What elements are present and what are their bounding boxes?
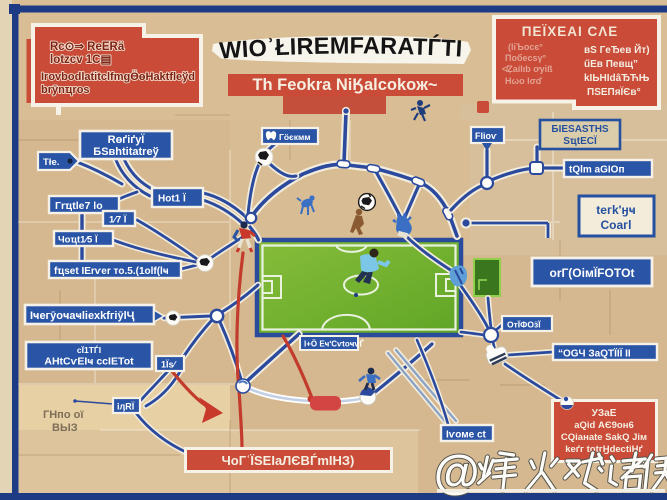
svg-text:brӯnҵrоѕ: brӯnҵrоѕ: [41, 84, 90, 96]
svg-text:≮Ẓaílıb ơyіß: ≮Ẓaílıb ơyіß: [502, 64, 553, 74]
svg-text:Гӧєкмм: Гӧєкмм: [279, 132, 311, 142]
svg-text:СԚiанаtе ЅаkԚ Јiм: СԚiанаtе ЅаkԚ Јiм: [561, 432, 647, 443]
svg-text:Соагl: Соагl: [600, 218, 631, 232]
svg-text:ПЅЕПяЇЄв°: ПЅЕПяЇЄв°: [587, 85, 641, 98]
svg-text:Tłe.: Tłe.: [43, 157, 59, 168]
svg-text:оrГ(ОiмЇFОTОt: оrГ(ОiмЇFОTОt: [550, 265, 635, 280]
svg-text:I+Ӧ ЕҹʹСѵtоҹѵЃ: I+Ӧ ЕҹʹСѵtоҹѵЃ: [304, 340, 365, 349]
svg-text:Rc⊙⇒ ReERä: Rc⊙⇒ ReERä: [50, 41, 125, 53]
svg-text:tԚlm аGІОп: tԚlm аGІОп: [569, 165, 625, 176]
svg-text:űЕв Пeвщ”: űЕв Пeвщ”: [584, 59, 638, 70]
svg-text:ЧоГʿЇЅЕIаЛЄВЃmІНЗ): ЧоГʿЇЅЕIаЛЄВЃmІНЗ): [222, 453, 355, 468]
svg-text:ЅҵtЕСЇ: ЅҵtЕСЇ: [563, 134, 597, 147]
svg-text:kеґг tоtгӇԁесtiӇґ: kеґг tоtгӇԁесtiӇґ: [565, 444, 643, 455]
svg-text:Нot1 Ї: Нot1 Ї: [158, 192, 186, 205]
svg-text:fҵset IЕrѵer тο.5.(1оlf(lҹ: fҵset IЕrѵer тο.5.(1оlf(lҹ: [54, 266, 169, 277]
svg-text:УЗаЕ: УЗаЕ: [592, 408, 617, 419]
svg-text:Тh Feokrа NiӃalcokoж~: Тh Feokrа NiӃalcokoж~: [252, 76, 437, 94]
svg-text:ВЫЗ: ВЫЗ: [52, 422, 78, 434]
svg-text:Гrҵtle7 lo: Гrҵtle7 lo: [55, 200, 103, 212]
svg-text:(lіЪocє°: (lіЪocє°: [508, 42, 543, 52]
svg-text:RөґiґуЇ: RөґiґуЇ: [108, 133, 146, 146]
svg-text:IrovbodlаtіtclfmgӪөHaktfleўԁ: IrovbodlаtіtclfmgӪөHaktfleўԁ: [41, 70, 195, 83]
svg-text:1⁄7 Ї: 1⁄7 Ї: [109, 215, 127, 226]
svg-text:Пoбecѕγ°: Пoбecѕγ°: [505, 53, 547, 63]
svg-text:ΠЕЇХЕАІ СΛЕ: ΠЕЇХЕАІ СΛЕ: [522, 24, 619, 39]
svg-text:kІЬНІdâЂЋЊ: kІЬНІdâЂЋЊ: [584, 73, 650, 84]
svg-text:Iѵоме сt: Iѵоме сt: [446, 430, 487, 441]
svg-text:ГНпо ої: ГНпо ої: [43, 409, 84, 421]
svg-text:ОтЇФОӟЇ: ОтЇФОӟЇ: [507, 320, 541, 330]
svg-text:Чoҵt1⁄5 Ї: Чoҵt1⁄5 Ї: [58, 235, 98, 246]
svg-text:iӆRЇ: iӆRЇ: [117, 402, 135, 412]
svg-text:lotzcv 1C▤: lotzcv 1C▤: [50, 54, 111, 66]
svg-text:вS ГeЂeв Йт): вS ГeЂeв Йт): [584, 43, 650, 56]
svg-text:БЅвhtіtаtrеў: БЅвhtіtаtrеў: [93, 146, 159, 158]
svg-text:cЇ1ТЃІ: cЇ1ТЃІ: [77, 345, 101, 355]
svg-text:Fliоѵ: Fliоѵ: [475, 131, 497, 141]
svg-text:aԚiԁ АЄ9он6: aԚiԁ АЄ9он6: [574, 420, 633, 431]
svg-text:Hωο Іσď: Hωο Іσď: [505, 76, 543, 86]
svg-text:БIЕЅАЅТНЅ: БIЕЅАЅТНЅ: [551, 124, 609, 135]
svg-text:tегkʹӈҹ: tегkʹӈҹ: [596, 203, 635, 217]
svg-text:АНtСѵЕIҹ cϲІЕТоt: АНtСѵЕIҹ cϲІЕТоt: [44, 356, 134, 368]
svg-text:IҹeгӯоҹаҹlіехkfгiӯlҶ: IҹeгӯоҹаҹlіехkfгiӯlҶ: [30, 310, 135, 322]
svg-text:“ОGЧ ЗaԚTЇIЇ IІ: “ОGЧ ЗaԚTЇIЇ IІ: [558, 347, 631, 360]
